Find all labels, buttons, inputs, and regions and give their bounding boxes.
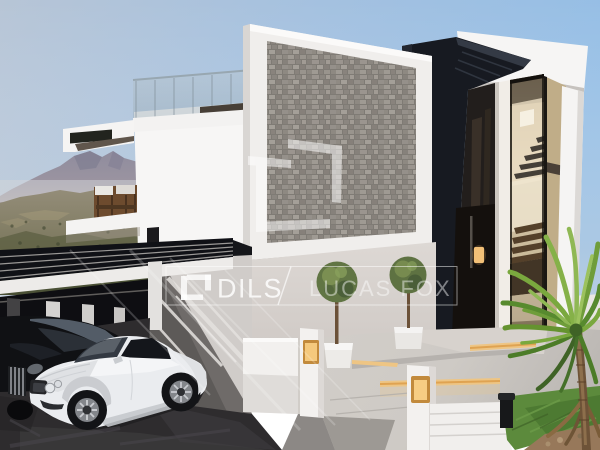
svg-text:DILS: DILS	[217, 274, 283, 304]
svg-text:LUCAS FOX: LUCAS FOX	[309, 276, 452, 301]
